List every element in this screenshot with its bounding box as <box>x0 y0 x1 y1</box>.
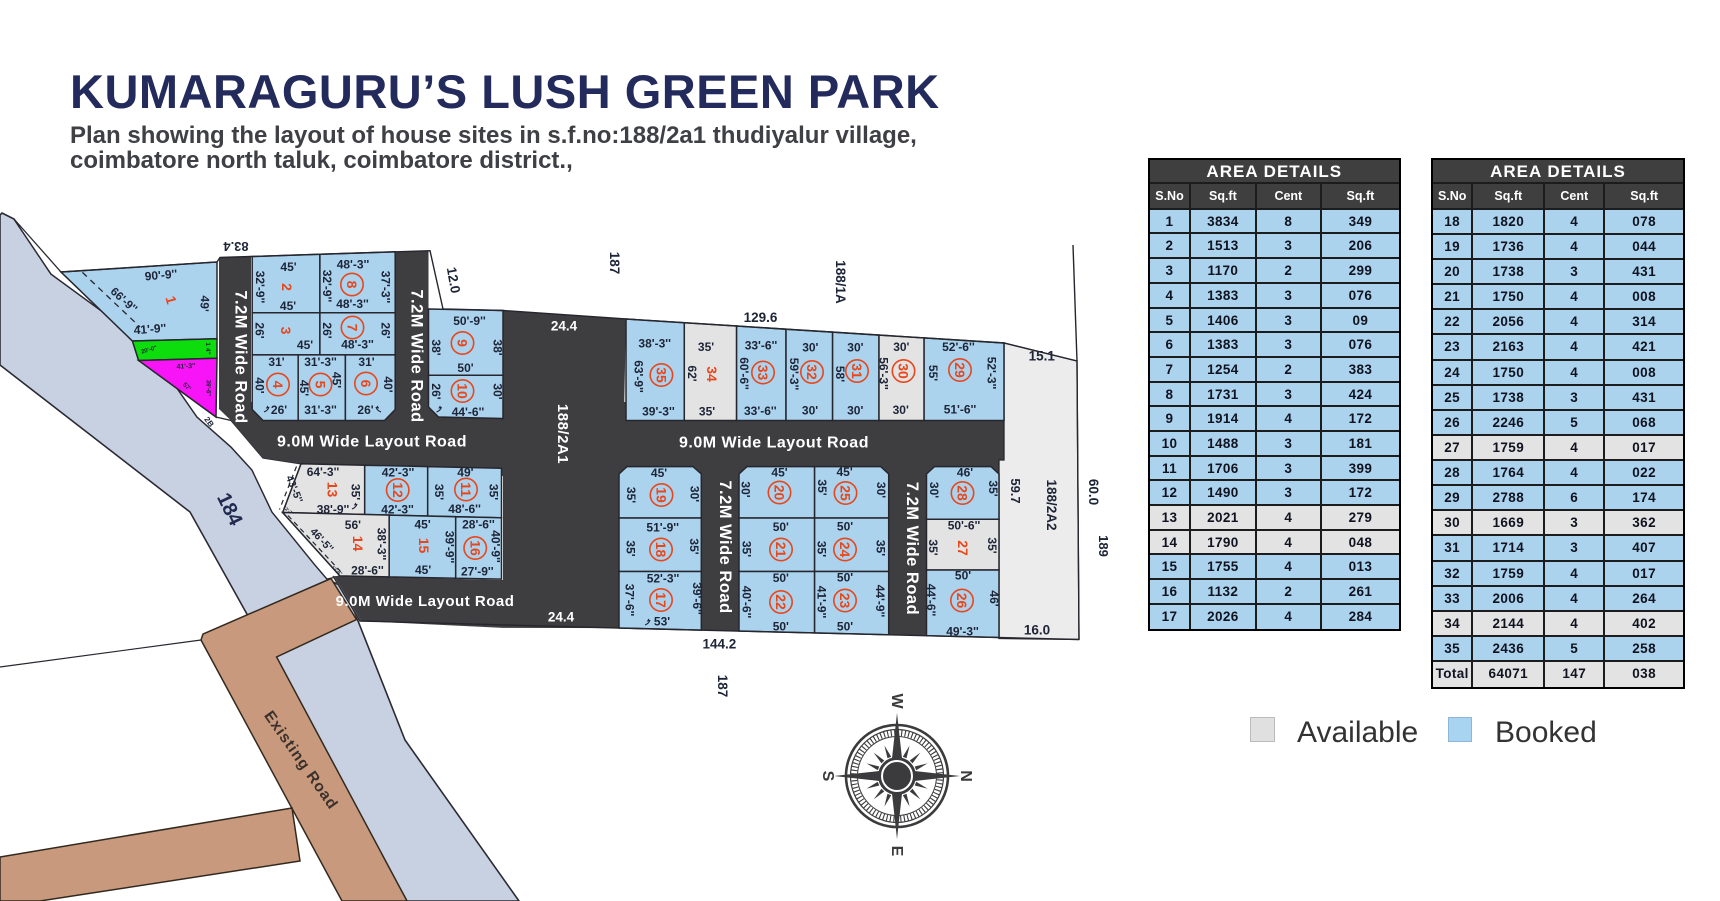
svg-text:187: 187 <box>607 252 622 275</box>
svg-text:24.4: 24.4 <box>551 319 578 334</box>
svg-text:59'-3'': 59'-3'' <box>787 358 801 391</box>
svg-text:40': 40' <box>381 376 395 392</box>
svg-text:38': 38' <box>490 339 504 355</box>
svg-text:60.0: 60.0 <box>1086 479 1101 505</box>
svg-text:52'-6'': 52'-6'' <box>942 340 975 354</box>
svg-text:28'-6'': 28'-6'' <box>351 564 384 578</box>
svg-text:26': 26' <box>320 322 334 338</box>
svg-text:35': 35' <box>623 540 637 556</box>
svg-text:49': 49' <box>197 295 212 312</box>
svg-text:21: 21 <box>773 542 789 558</box>
svg-text:45': 45' <box>280 260 296 274</box>
svg-text:1 4'': 1 4'' <box>204 342 211 355</box>
svg-text:144.2: 144.2 <box>703 637 737 652</box>
svg-text:7.2M Wide Road: 7.2M Wide Road <box>716 480 734 613</box>
svg-text:129.6: 129.6 <box>744 310 778 325</box>
svg-text:188/1A: 188/1A <box>833 260 848 304</box>
svg-text:3: 3 <box>278 327 294 335</box>
svg-text:12.0: 12.0 <box>444 266 463 294</box>
svg-text:45': 45' <box>651 466 667 480</box>
svg-text:19: 19 <box>654 487 670 503</box>
svg-text:41'-9'': 41'-9'' <box>815 586 829 619</box>
svg-text:30': 30' <box>802 404 818 418</box>
svg-text:187: 187 <box>715 675 730 698</box>
svg-text:8: 8 <box>344 281 360 289</box>
svg-text:53': 53' <box>654 615 670 629</box>
svg-text:50': 50' <box>837 620 853 634</box>
svg-text:16.0: 16.0 <box>1024 623 1050 638</box>
svg-text:30: 30 <box>896 363 912 379</box>
svg-text:44'-6'': 44'-6'' <box>924 584 938 617</box>
svg-text:7.2M Wide Road: 7.2M Wide Road <box>408 289 426 422</box>
svg-text:37'-6'': 37'-6'' <box>622 584 636 617</box>
svg-text:22: 22 <box>773 594 789 610</box>
svg-text:31': 31' <box>358 355 374 369</box>
svg-text:35': 35' <box>985 537 999 553</box>
svg-text:39'-6'': 39'-6'' <box>690 582 704 615</box>
svg-text:42'-3'': 42'-3'' <box>381 502 414 516</box>
svg-text:189: 189 <box>1096 535 1111 557</box>
svg-text:50': 50' <box>457 361 473 375</box>
svg-text:35': 35' <box>986 480 1000 496</box>
svg-text:44'-9'': 44'-9'' <box>873 585 887 618</box>
svg-text:31': 31' <box>268 355 284 369</box>
svg-text:23: 23 <box>837 593 853 609</box>
svg-text:48'-3'': 48'-3'' <box>341 338 374 352</box>
svg-text:30': 30' <box>874 482 888 498</box>
svg-text:56'-3'': 56'-3'' <box>876 357 890 390</box>
svg-text:38': 38' <box>429 339 443 355</box>
svg-text:35': 35' <box>874 540 888 556</box>
svg-text:30': 30' <box>490 383 504 399</box>
svg-text:45': 45' <box>771 466 787 480</box>
svg-text:30': 30' <box>893 340 909 354</box>
svg-text:15.1: 15.1 <box>1029 349 1056 364</box>
svg-text:46': 46' <box>987 590 1001 606</box>
svg-text:35': 35' <box>486 484 500 500</box>
svg-text:48'-3'': 48'-3'' <box>336 297 369 311</box>
svg-text:S: S <box>819 771 836 782</box>
svg-text:59.7: 59.7 <box>1008 478 1023 503</box>
svg-text:7: 7 <box>345 324 361 332</box>
svg-text:188/2A2: 188/2A2 <box>1044 479 1059 530</box>
svg-text:7.2M Wide Road: 7.2M Wide Road <box>232 290 250 423</box>
svg-text:9.0M Wide Layout Road: 9.0M Wide Layout Road <box>277 434 467 451</box>
svg-text:33'-6'': 33'-6'' <box>744 404 777 418</box>
svg-text:9: 9 <box>455 339 471 347</box>
svg-text:39'-6'': 39'-6'' <box>205 380 211 397</box>
svg-text:32'-9'': 32'-9'' <box>253 271 267 304</box>
svg-text:30': 30' <box>738 481 752 497</box>
svg-text:39'-9'': 39'-9'' <box>442 531 456 564</box>
svg-text:40': 40' <box>252 377 266 393</box>
svg-text:38'-3'': 38'-3'' <box>375 528 389 561</box>
svg-text:N: N <box>957 770 974 782</box>
svg-text:25: 25 <box>838 485 854 501</box>
svg-text:41'-3'': 41'-3'' <box>176 363 196 371</box>
svg-text:83.4: 83.4 <box>223 239 249 254</box>
svg-text:35': 35' <box>699 405 715 419</box>
svg-text:37'-3'': 37'-3'' <box>378 271 392 304</box>
svg-text:50': 50' <box>773 520 789 534</box>
svg-text:6: 6 <box>358 380 374 388</box>
svg-text:35': 35' <box>815 541 829 557</box>
svg-text:29: 29 <box>952 362 968 378</box>
svg-text:30': 30' <box>847 404 863 418</box>
svg-text:2: 2 <box>279 283 295 291</box>
svg-text:31: 31 <box>849 363 865 379</box>
svg-text:62': 62' <box>685 365 699 381</box>
svg-text:45': 45' <box>297 338 313 352</box>
svg-text:60'-6'': 60'-6'' <box>737 357 751 390</box>
svg-text:51'-9'': 51'-9'' <box>646 521 679 535</box>
svg-text:26': 26' <box>378 322 392 338</box>
svg-text:35': 35' <box>687 538 701 554</box>
svg-text:26': 26' <box>429 383 443 399</box>
svg-text:20: 20 <box>772 485 788 501</box>
svg-text:34: 34 <box>704 366 720 382</box>
svg-text:45': 45' <box>280 299 296 313</box>
svg-text:55': 55' <box>926 365 940 381</box>
svg-text:38'-9'': 38'-9'' <box>317 503 350 517</box>
svg-text:12: 12 <box>390 482 406 498</box>
svg-text:39'-3'': 39'-3'' <box>642 405 675 419</box>
svg-text:52'-3'': 52'-3'' <box>647 572 680 586</box>
svg-text:32'-9'': 32'-9'' <box>320 270 334 303</box>
svg-text:E: E <box>888 846 905 857</box>
svg-text:48'-6'': 48'-6'' <box>448 502 481 516</box>
svg-text:64'-3'': 64'-3'' <box>307 465 340 479</box>
svg-text:50': 50' <box>837 571 853 585</box>
svg-text:26: 26 <box>954 593 970 609</box>
svg-text:45': 45' <box>836 465 852 479</box>
svg-text:58': 58' <box>833 366 847 382</box>
svg-text:50'-9'': 50'-9'' <box>453 314 486 328</box>
svg-text:48'-3'': 48'-3'' <box>337 258 370 272</box>
svg-text:52'-3'': 52'-3'' <box>984 357 998 390</box>
svg-text:24: 24 <box>837 542 853 558</box>
svg-text:33: 33 <box>755 365 771 381</box>
svg-text:51'-6'': 51'-6'' <box>944 403 977 417</box>
svg-text:13: 13 <box>325 482 341 498</box>
svg-text:35': 35' <box>698 340 714 354</box>
svg-text:35: 35 <box>654 367 670 383</box>
svg-text:30': 30' <box>847 341 863 355</box>
svg-text:35': 35' <box>624 487 638 503</box>
svg-text:7.2M Wide Road: 7.2M Wide Road <box>903 482 921 615</box>
svg-text:49': 49' <box>457 466 473 480</box>
svg-text:90'-9'': 90'-9'' <box>144 267 178 284</box>
svg-text:44'-6'': 44'-6'' <box>452 405 485 419</box>
svg-text:26': 26' <box>271 403 287 417</box>
svg-text:38'-3'': 38'-3'' <box>638 337 671 351</box>
svg-text:63'-9'': 63'-9'' <box>632 360 646 393</box>
svg-text:27: 27 <box>955 540 971 556</box>
svg-text:32: 32 <box>804 364 820 380</box>
svg-text:30': 30' <box>893 403 909 417</box>
svg-text:50': 50' <box>837 520 853 534</box>
svg-text:188/2A1: 188/2A1 <box>554 404 571 464</box>
svg-text:45': 45' <box>414 518 430 532</box>
svg-text:10: 10 <box>455 383 471 399</box>
svg-text:17: 17 <box>653 592 669 608</box>
svg-text:14: 14 <box>350 536 366 552</box>
svg-text:5: 5 <box>313 381 329 389</box>
svg-text:35': 35' <box>432 484 446 500</box>
svg-text:40'-9'': 40'-9'' <box>488 530 502 563</box>
svg-text:30': 30' <box>687 486 701 502</box>
svg-text:35': 35' <box>815 479 829 495</box>
svg-text:11: 11 <box>458 482 474 497</box>
svg-text:9.0M Wide Layout Road: 9.0M Wide Layout Road <box>679 435 869 452</box>
svg-text:33'-6'': 33'-6'' <box>745 339 778 353</box>
svg-text:30': 30' <box>927 482 941 498</box>
svg-text:50': 50' <box>773 571 789 585</box>
svg-text:18: 18 <box>653 542 669 558</box>
svg-text:56': 56' <box>345 518 361 532</box>
svg-text:9.0M Wide Layout Road: 9.0M Wide Layout Road <box>336 593 515 610</box>
svg-text:50': 50' <box>955 569 971 583</box>
svg-text:26': 26' <box>252 322 266 338</box>
svg-text:42'-3'': 42'-3'' <box>382 466 415 480</box>
svg-text:50'-6'': 50'-6'' <box>948 519 981 533</box>
svg-text:46': 46' <box>957 466 973 480</box>
svg-text:31'-3'': 31'-3'' <box>304 355 337 369</box>
svg-text:27'-9'': 27'-9'' <box>461 565 494 579</box>
svg-text:35': 35' <box>926 539 940 555</box>
svg-text:24.4: 24.4 <box>548 609 575 624</box>
svg-text:41'-9'': 41'-9'' <box>133 321 167 337</box>
svg-text:31'-3'': 31'-3'' <box>304 403 337 417</box>
svg-text:45': 45' <box>415 563 431 577</box>
svg-text:W: W <box>888 693 905 709</box>
svg-text:40'-6'': 40'-6'' <box>740 586 754 619</box>
svg-text:4: 4 <box>270 381 286 389</box>
svg-text:35': 35' <box>740 541 754 557</box>
svg-text:26': 26' <box>357 403 373 417</box>
svg-text:28: 28 <box>955 485 971 501</box>
svg-text:30': 30' <box>802 341 818 355</box>
svg-text:16: 16 <box>467 540 483 556</box>
svg-text:35': 35' <box>348 484 362 500</box>
svg-text:15: 15 <box>416 538 432 554</box>
